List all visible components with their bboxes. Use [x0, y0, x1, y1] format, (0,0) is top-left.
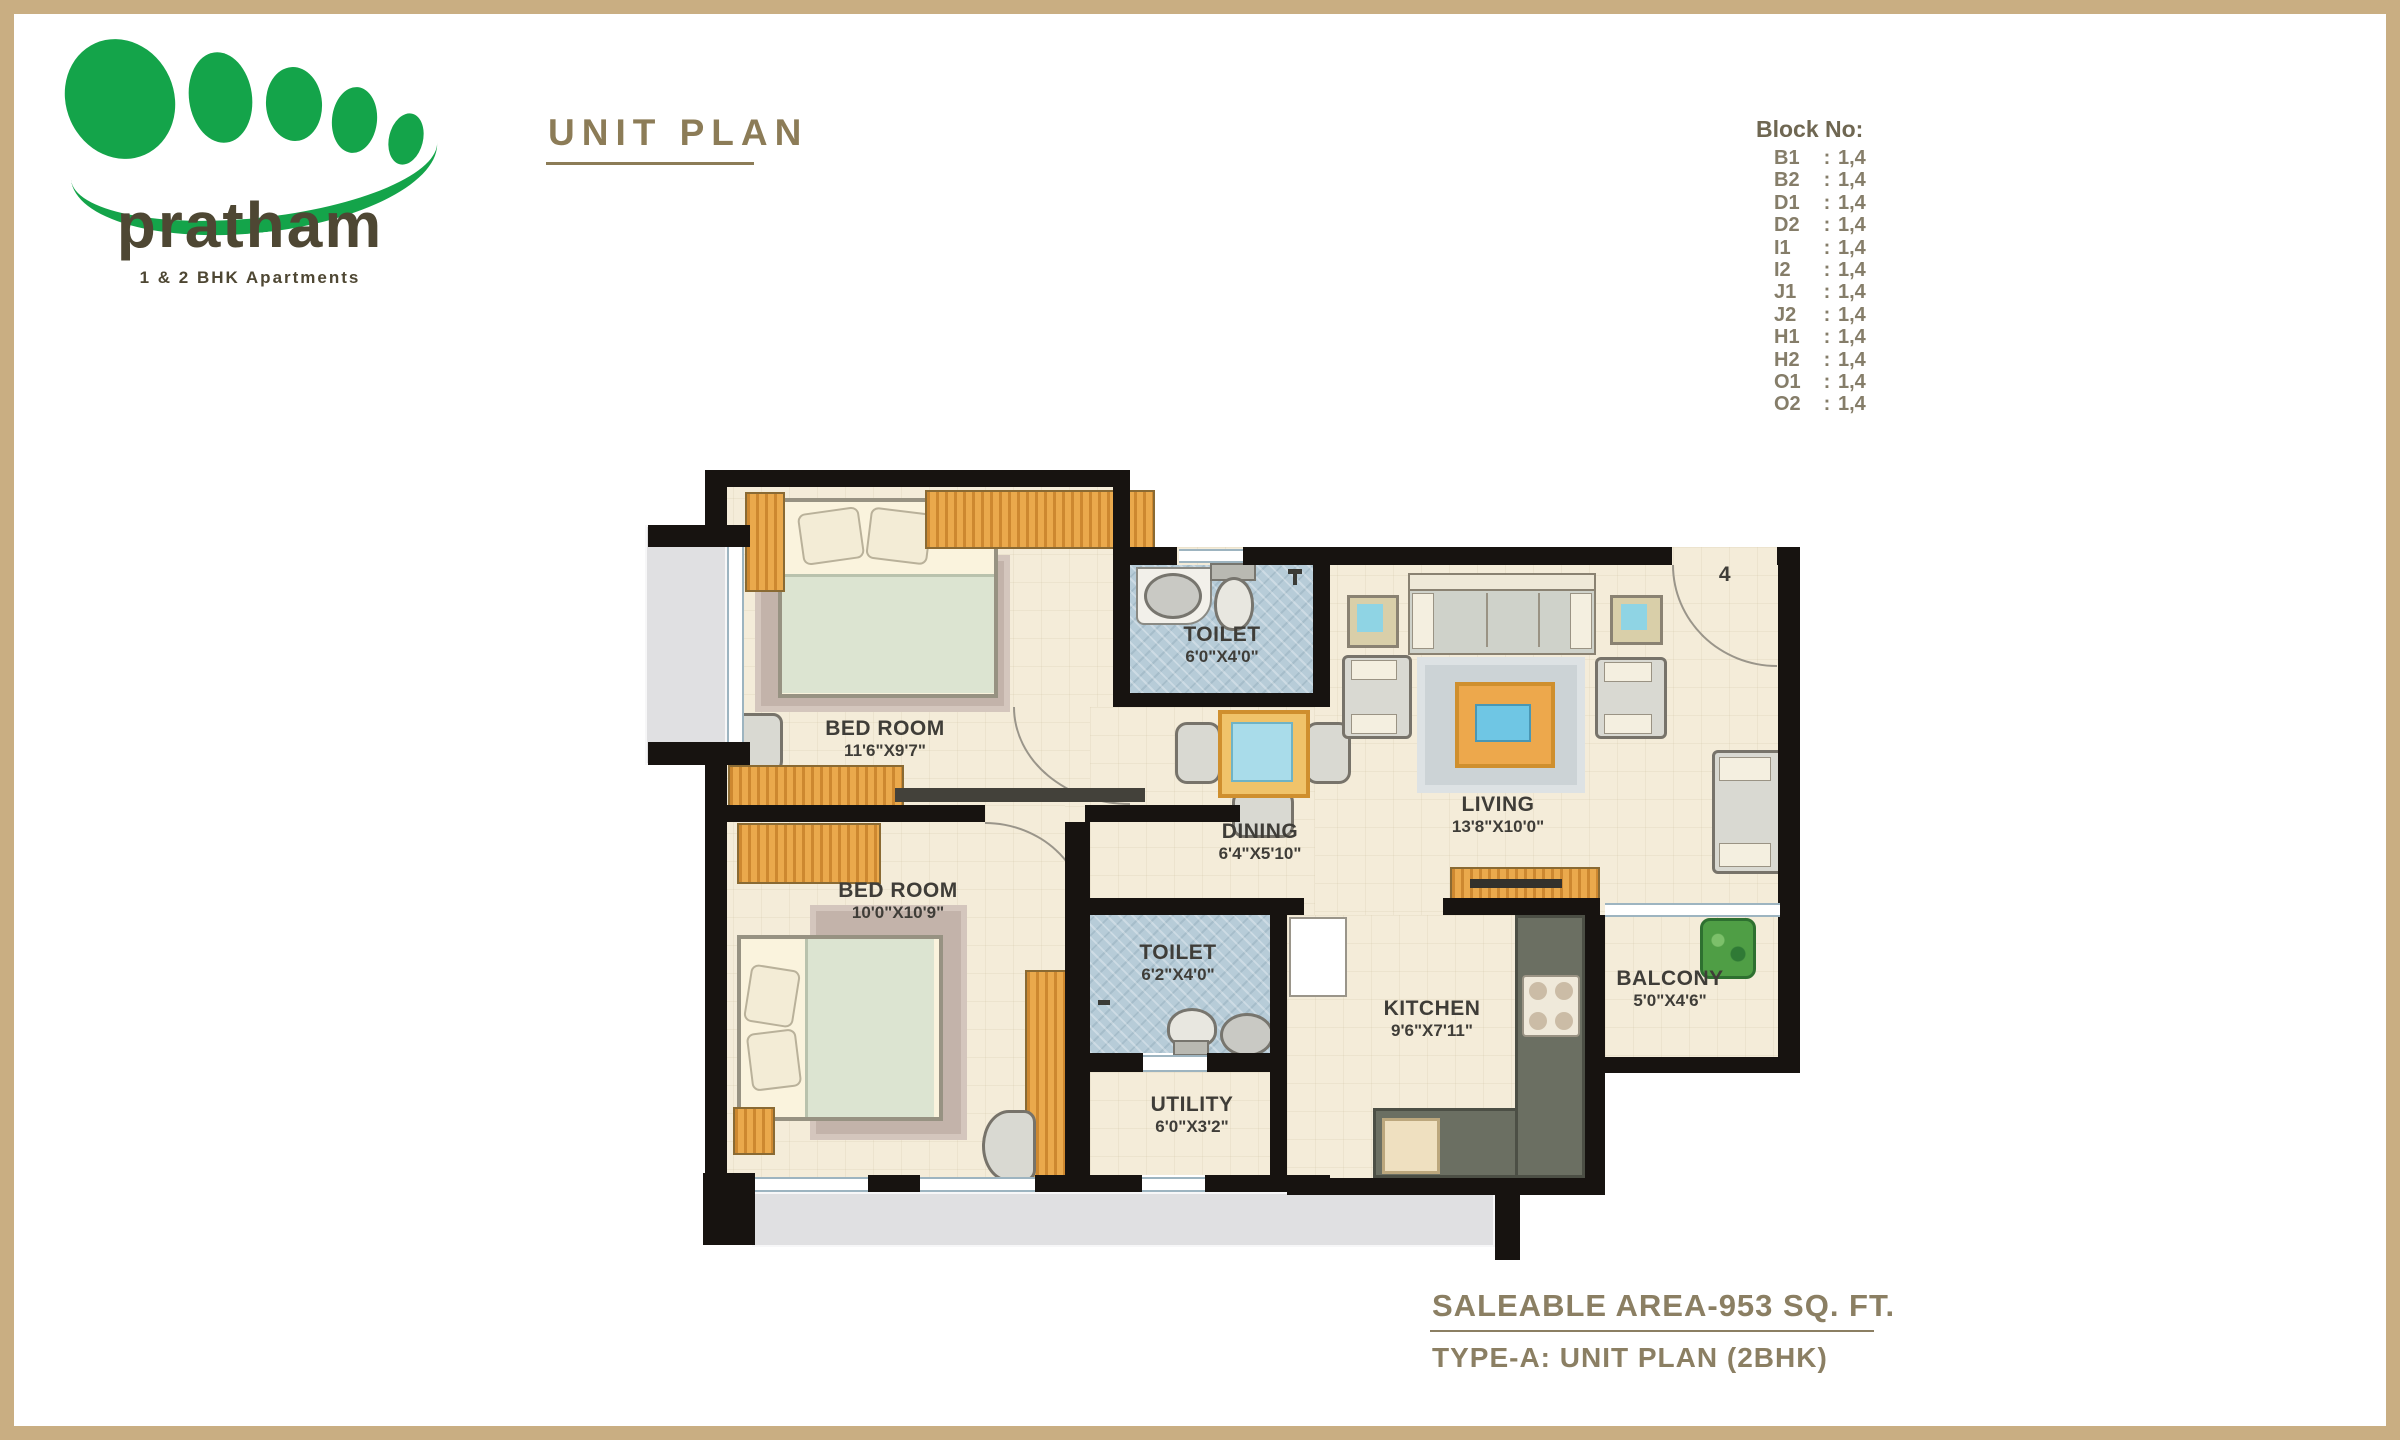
wall — [1035, 1175, 1142, 1192]
page: pratham 1 & 2 BHK Apartments UNIT PLAN B… — [0, 0, 2400, 1440]
washbasin — [1144, 573, 1202, 619]
wall — [1778, 547, 1800, 1073]
pillow — [865, 506, 933, 565]
armchair-cushion — [1351, 714, 1397, 734]
wall — [1328, 547, 1672, 565]
window — [727, 547, 744, 742]
wall — [1313, 565, 1330, 707]
sofa-seat — [1408, 589, 1596, 655]
wall — [648, 525, 750, 547]
wall — [1287, 1178, 1605, 1195]
wall — [1113, 565, 1130, 707]
pillow — [743, 963, 801, 1028]
wall-shelf — [895, 788, 1145, 802]
two-seater-sofa — [1712, 750, 1784, 874]
dining-table-glass — [1231, 722, 1293, 782]
floor-plan: 4 — [640, 455, 1820, 1270]
kitchen-label: KITCHEN9'6"X7'11" — [1384, 997, 1481, 1041]
armchair — [1595, 657, 1667, 739]
wall — [1207, 1053, 1270, 1072]
toilet1-label: TOILET6'0"X4'0" — [1183, 623, 1260, 667]
wall — [1113, 693, 1330, 707]
window — [755, 1177, 868, 1192]
armchair-cushion — [1351, 660, 1397, 680]
stove — [1522, 975, 1580, 1037]
block-row: H1:1,4 — [1756, 326, 1866, 348]
burner — [1529, 1012, 1547, 1030]
tv — [1470, 879, 1562, 888]
wall — [705, 1175, 755, 1192]
utility-label: UTILITY6'0"X3'2" — [1151, 1093, 1234, 1137]
desk-chair — [982, 1110, 1036, 1182]
burner — [1555, 1012, 1573, 1030]
wall — [868, 1175, 920, 1192]
burner — [1555, 982, 1573, 1000]
wall — [705, 470, 1130, 487]
bed — [737, 935, 943, 1121]
sofa-cushion — [1719, 843, 1771, 867]
side-table-top — [1357, 604, 1383, 632]
bedroom1-label: BED ROOM11'6"X9'7" — [825, 717, 945, 761]
sofa-cushion-line — [1486, 593, 1488, 647]
block-row: J2:1,4 — [1756, 304, 1866, 326]
window — [1179, 549, 1243, 563]
block-number-list: Block No: B1:1,4 B2:1,4 D1:1,4 D2:1,4 I1… — [1756, 116, 1866, 416]
blanket — [782, 574, 994, 693]
toilet-wc — [1173, 1040, 1209, 1056]
shower-icon — [1293, 573, 1297, 585]
block-row: J1:1,4 — [1756, 281, 1866, 303]
toilet2-label: TOILET6'2"X4'0" — [1139, 941, 1216, 985]
coffee-table-glass — [1475, 704, 1531, 742]
sofa-cushion-line — [1538, 593, 1540, 647]
block-row: B1:1,4 — [1756, 147, 1866, 169]
logo-tagline: 1 & 2 BHK Apartments — [60, 268, 440, 288]
wall — [1443, 898, 1600, 915]
desk — [728, 765, 904, 809]
side-ledge — [645, 525, 727, 765]
saleable-area-text: SALEABLE AREA-953 SQ. FT. — [1432, 1288, 1895, 1324]
block-row: B2:1,4 — [1756, 169, 1866, 191]
wall — [705, 822, 727, 1183]
block-row: O1:1,4 — [1756, 371, 1866, 393]
wall — [1085, 805, 1240, 822]
wall — [648, 742, 750, 765]
living-label: LIVING13'8"X10'0" — [1452, 793, 1544, 837]
side-table-top — [1621, 604, 1647, 630]
wall — [1065, 898, 1304, 915]
page-title: UNIT PLAN — [548, 112, 808, 154]
wall — [705, 805, 985, 822]
dining-table — [1218, 710, 1310, 798]
wall — [1495, 1195, 1520, 1260]
sofa-cushion — [1719, 757, 1771, 781]
logo-wordmark: pratham — [60, 188, 440, 262]
block-row: D1:1,4 — [1756, 192, 1866, 214]
wall — [1605, 1057, 1800, 1073]
shower-icon — [1098, 1000, 1110, 1005]
title-underline — [546, 162, 754, 165]
coffee-table — [1455, 682, 1555, 768]
plan-type-text: TYPE-A: UNIT PLAN (2BHK) — [1432, 1342, 1828, 1374]
footer-underline — [1430, 1330, 1874, 1332]
wall — [1585, 915, 1605, 1180]
nightstand — [733, 1107, 775, 1155]
kitchen-counter — [1515, 915, 1585, 1178]
wall — [1090, 1053, 1143, 1072]
sofa-armrest — [1412, 593, 1434, 649]
balcony-slider-window — [1605, 903, 1780, 917]
nightstand — [745, 492, 785, 592]
block-row: I2:1,4 — [1756, 259, 1866, 281]
window — [920, 1177, 1035, 1192]
wall — [1065, 822, 1090, 1175]
blanket — [805, 939, 934, 1117]
wardrobe — [737, 823, 881, 884]
armchair — [1342, 655, 1412, 739]
armchair-cushion — [1604, 662, 1652, 682]
kitchen-sink — [1382, 1118, 1440, 1174]
wall — [1270, 915, 1287, 1180]
side-table — [1347, 595, 1399, 648]
washbasin — [1220, 1013, 1274, 1057]
dining-label: DINING6'4"X5'10" — [1219, 820, 1302, 864]
block-list-heading: Block No: — [1756, 116, 1866, 143]
side-table — [1610, 595, 1663, 645]
block-row: O2:1,4 — [1756, 393, 1866, 415]
balcony-label: BALCONY5'0"X4'6" — [1616, 967, 1723, 1011]
burner — [1529, 982, 1547, 1000]
pillow — [797, 506, 866, 566]
door-threshold — [1142, 1177, 1205, 1192]
entry-door-number: 4 — [1719, 563, 1731, 587]
bedroom2-label: BED ROOM10'0"X10'9" — [838, 879, 958, 923]
dining-chair — [1175, 722, 1221, 784]
pillow — [746, 1028, 803, 1092]
block-row: I1:1,4 — [1756, 237, 1866, 259]
wall — [1113, 547, 1177, 565]
armchair-cushion — [1604, 714, 1652, 734]
sofa-armrest — [1570, 593, 1592, 649]
block-row: H2:1,4 — [1756, 349, 1866, 371]
block-row: D2:1,4 — [1756, 214, 1866, 236]
kitchen-door-leaf — [1289, 917, 1347, 997]
terrace-ledge — [752, 1192, 1495, 1247]
door-threshold — [1143, 1055, 1207, 1072]
